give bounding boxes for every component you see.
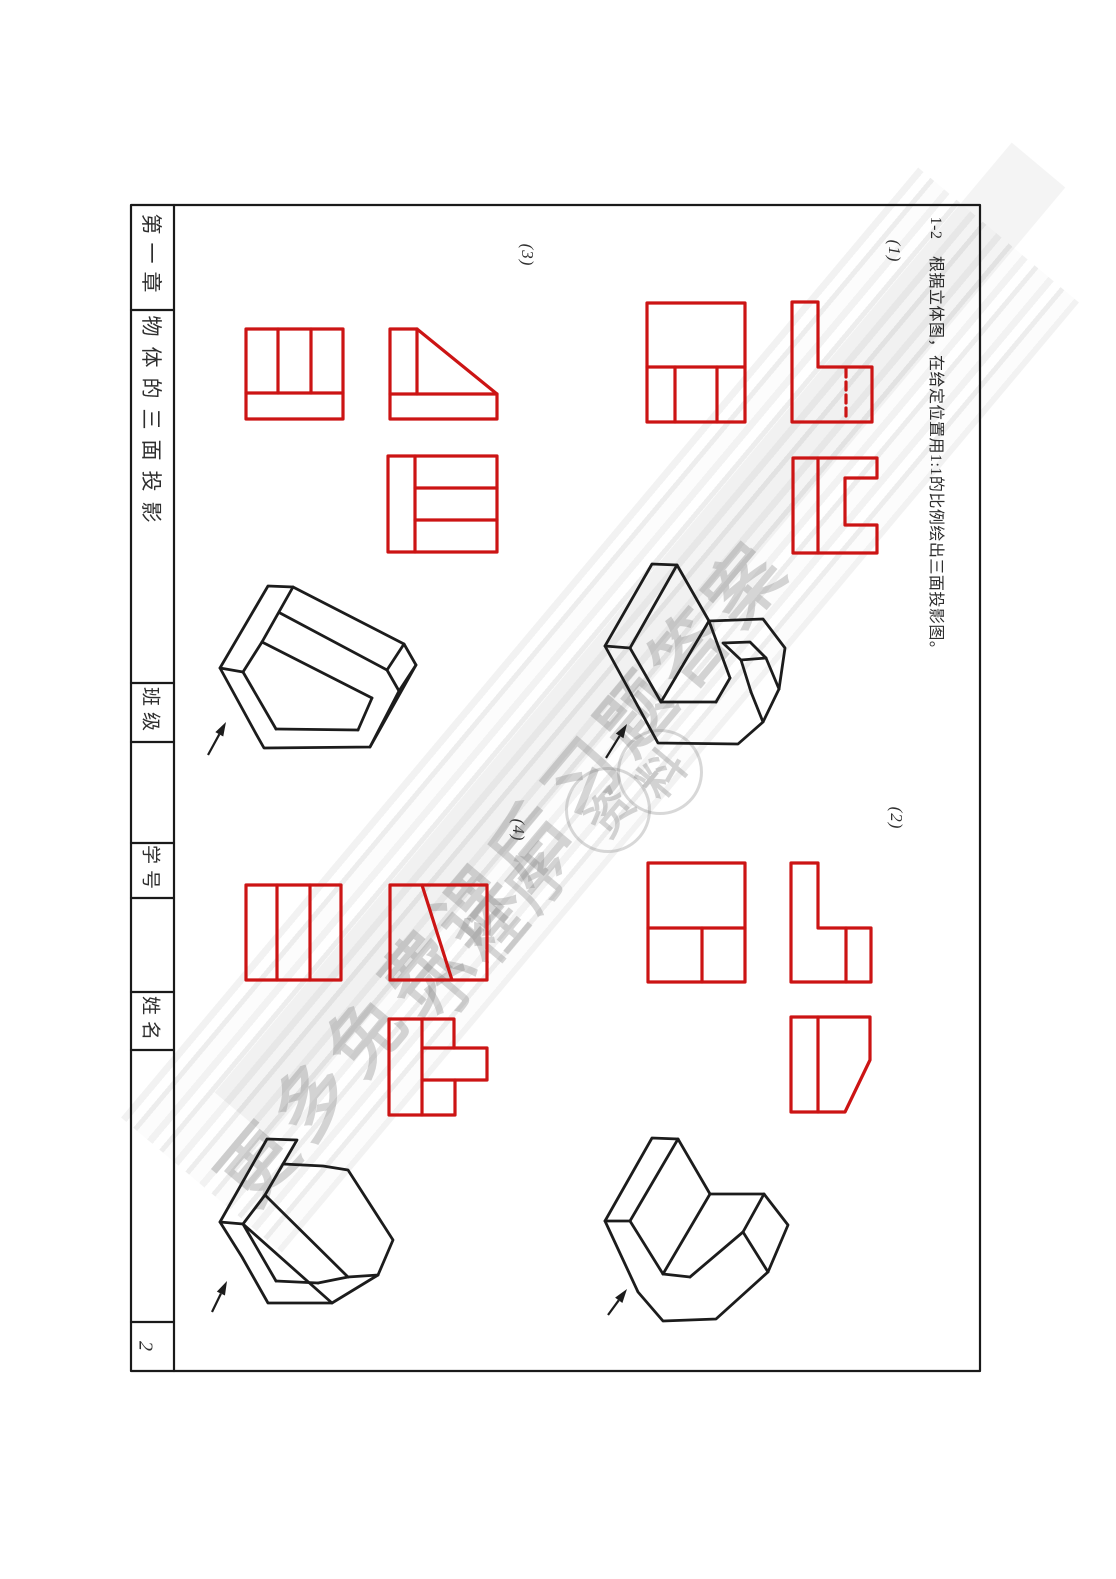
drawing-canvas: [0, 0, 1116, 1579]
worksheet-page: 更多免费课后习题答案 小程序 资 料 第一章 物体的三面投影 班级 学号 姓名 …: [0, 0, 1116, 1579]
